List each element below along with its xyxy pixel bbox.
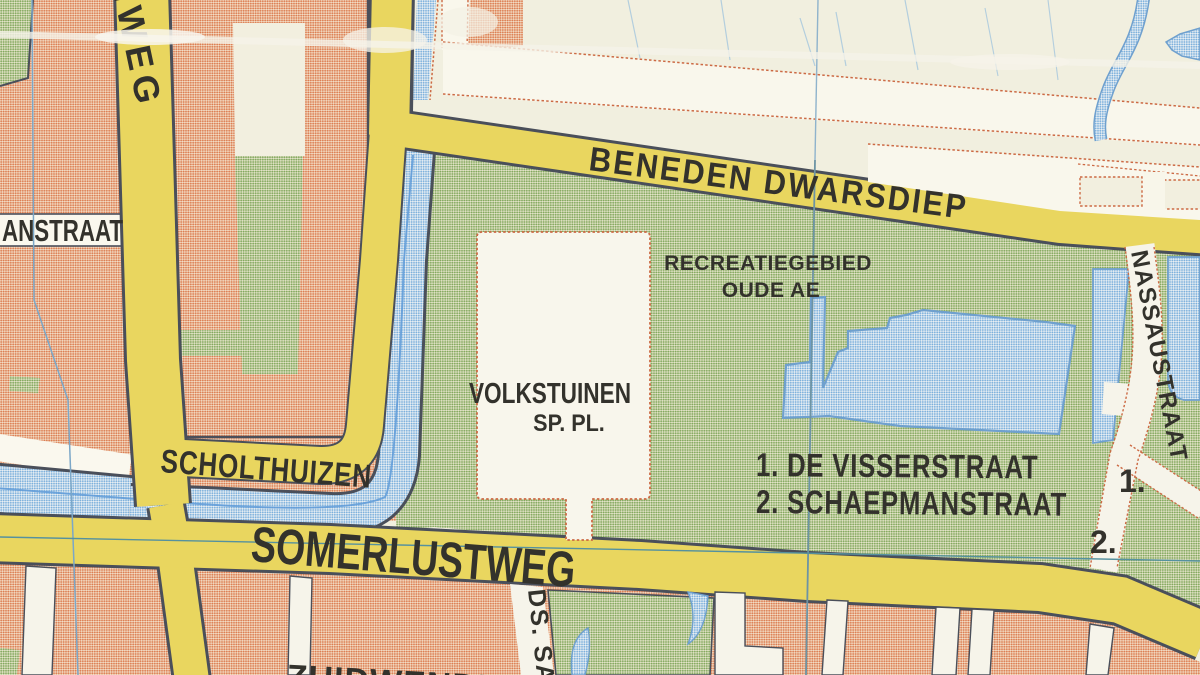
svg-text:RECREATIEGEBIED: RECREATIEGEBIED [664,252,872,275]
svg-text:VOLKSTUINEN: VOLKSTUINEN [469,376,631,409]
svg-text:OUDE AE: OUDE AE [722,279,820,302]
svg-text:SP. PL.: SP. PL. [533,409,605,436]
svg-text:1. DE VISSERSTRAAT: 1. DE VISSERSTRAAT [756,447,1039,486]
svg-text:1.: 1. [1119,463,1146,499]
svg-text:ANSTRAAT: ANSTRAAT [2,213,123,247]
svg-text:2. SCHAEPMANSTRAAT: 2. SCHAEPMANSTRAAT [756,484,1067,524]
svg-text:2.: 2. [1090,524,1117,560]
